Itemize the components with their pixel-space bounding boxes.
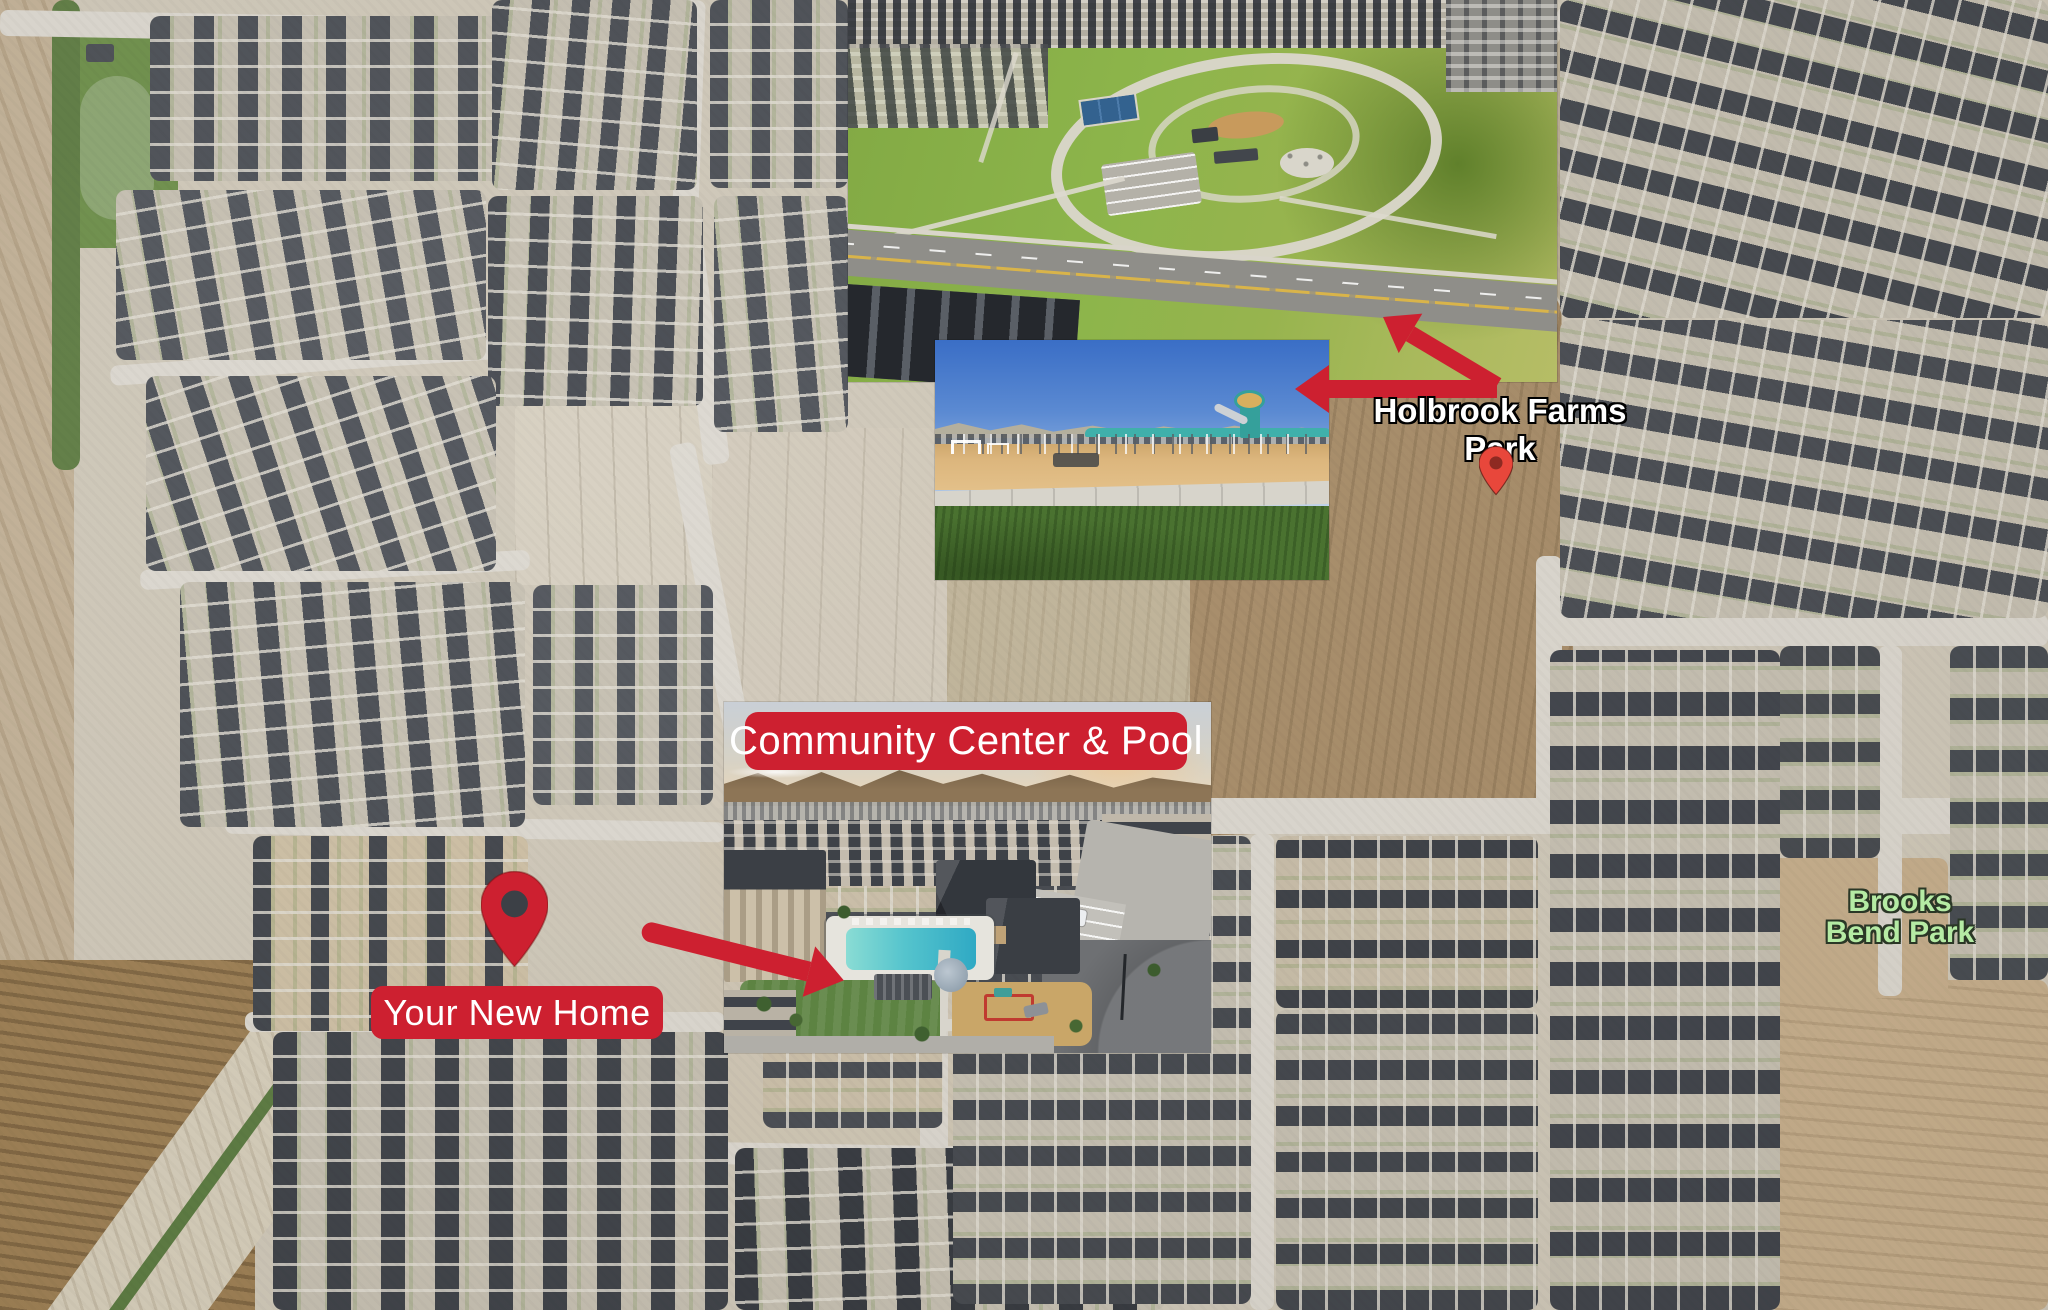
house-block (533, 585, 713, 805)
house-block (1276, 836, 1538, 1008)
your-new-home-badge: Your New Home (371, 986, 663, 1039)
playground-photo-tower-top (1234, 390, 1265, 411)
house-block (492, 0, 697, 190)
playground-photo-grass (935, 506, 1329, 580)
house-block (180, 582, 525, 827)
green-area (86, 44, 114, 62)
playground-photo (935, 340, 1329, 580)
house-block (1780, 646, 1880, 858)
house-block (488, 196, 703, 406)
playground-photo-equipment (1053, 453, 1099, 467)
park-photo-left-houses (848, 44, 1048, 128)
house-block (146, 376, 496, 571)
house-block (150, 16, 500, 181)
house-block (1550, 650, 1780, 1310)
house-block (1276, 1010, 1538, 1310)
park-photo-street (1446, 0, 1557, 92)
green-area (52, 0, 80, 470)
house-block (714, 196, 848, 432)
road (1556, 614, 2048, 646)
brooks-bend-label-line2: Bend Park (1820, 917, 1980, 948)
house-block (1560, 320, 2048, 618)
community-center-pool-badge: Community Center & Pool (745, 712, 1187, 770)
house-block (710, 0, 848, 188)
dirt-field (1768, 980, 2048, 1310)
park-photo-plaza (1280, 148, 1334, 178)
brooks-bend-park-label: Brooks Bend Park (1820, 886, 1980, 948)
house-block (1560, 0, 2048, 318)
map-pin-icon (1479, 444, 1513, 497)
aerial-map: Holbrook Farms Park Your New Home Commun… (0, 0, 2048, 1310)
road (1250, 834, 1274, 1310)
holbrook-park-aerial-photo (848, 0, 1557, 382)
house-block (116, 190, 486, 360)
brooks-bend-label-line1: Brooks (1820, 886, 1980, 917)
map-pin-icon (481, 871, 548, 967)
playground-photo-soccer-goal (951, 440, 981, 454)
park-photo-pavilion (1191, 127, 1218, 144)
playground-photo-soccer-goal (987, 443, 1009, 454)
playground-photo-equipment-posts (963, 434, 1307, 454)
house-block (273, 1032, 728, 1310)
